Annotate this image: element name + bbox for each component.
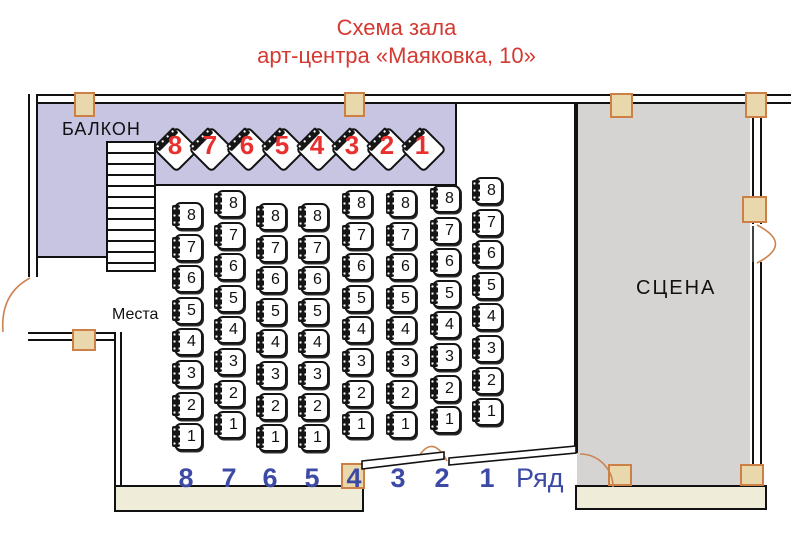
seat-back-icon <box>256 396 264 417</box>
seat-back-icon <box>172 363 180 384</box>
seat-number: 7 <box>264 235 287 263</box>
seat-row2-place5: 5 <box>430 280 461 308</box>
seat-back-icon <box>256 269 264 290</box>
seat-number: 8 <box>222 190 245 218</box>
seat-back-icon <box>172 268 180 289</box>
seat-row7-place1: 1 <box>214 411 245 439</box>
page-title: Схема зала арт-центра «Маяковка, 10» <box>0 14 793 70</box>
seat-back-icon <box>214 351 222 372</box>
seat-number: 8 <box>306 203 329 231</box>
seat-number: 2 <box>438 375 461 403</box>
seat-back-icon <box>256 238 264 259</box>
seat-number: 1 <box>306 424 329 452</box>
seat-row1-place3: 3 <box>472 335 503 363</box>
right-door-arc <box>757 225 776 263</box>
title-line-2: арт-центра «Маяковка, 10» <box>0 42 793 70</box>
seat-row8-place4: 4 <box>172 328 203 356</box>
seat-row8-place8: 8 <box>172 202 203 230</box>
seat-row8-place3: 3 <box>172 360 203 388</box>
seat-back-icon <box>430 283 438 304</box>
seat-back-icon <box>214 256 222 277</box>
seat-row6-place1: 1 <box>256 424 287 452</box>
seat-number: 2 <box>480 367 503 395</box>
seat-row1-place8: 8 <box>472 177 503 205</box>
seat-row2-place7: 7 <box>430 217 461 245</box>
seat-back-icon <box>256 301 264 322</box>
seat-row6-place5: 5 <box>256 298 287 326</box>
seat-back-icon <box>172 300 180 321</box>
seat-row1-place7: 7 <box>472 209 503 237</box>
wall-stud <box>608 464 632 486</box>
seat-number: 6 <box>222 253 245 281</box>
balcony-seat-1: 1 <box>401 125 443 171</box>
seat-number: 4 <box>264 329 287 357</box>
seat-number: 4 <box>306 329 329 357</box>
seat-row4-place2: 2 <box>342 380 373 408</box>
seat-number: 1 <box>180 423 203 451</box>
seat-number: 8 <box>394 190 417 218</box>
wall-stud <box>344 92 365 117</box>
seat-number: 6 <box>394 253 417 281</box>
seat-back-icon <box>430 220 438 241</box>
wall-bottom-hall <box>114 485 364 512</box>
hall-scheme: Схема зала арт-центра «Маяковка, 10» БАЛ… <box>0 0 793 544</box>
seat-back-icon <box>172 205 180 226</box>
seat-number: 1 <box>222 411 245 439</box>
seat-number: 6 <box>264 266 287 294</box>
seat-back-icon <box>472 275 480 296</box>
seat-row7-place5: 5 <box>214 285 245 313</box>
seat-back-icon <box>386 414 394 435</box>
seat-number: 7 <box>480 209 503 237</box>
row-number-4: 4 <box>346 463 361 494</box>
seat-back-icon <box>298 301 306 322</box>
seat-back-icon <box>430 188 438 209</box>
wall-stud <box>610 93 633 118</box>
seat-row7-place7: 7 <box>214 222 245 250</box>
seat-row6-place3: 3 <box>256 361 287 389</box>
seat-row5-place6: 6 <box>298 266 329 294</box>
seat-number: 2 <box>264 393 287 421</box>
seat-row3-place3: 3 <box>386 348 417 376</box>
seat-number: 2 <box>394 380 417 408</box>
seat-back-icon <box>386 383 394 404</box>
seat-row7-place8: 8 <box>214 190 245 218</box>
seat-number: 7 <box>222 222 245 250</box>
seats-label: Места <box>112 306 158 324</box>
row-number-2: 2 <box>434 463 449 494</box>
seat-row8-place2: 2 <box>172 392 203 420</box>
stage-left-wall <box>574 104 578 453</box>
seat-row2-place4: 4 <box>430 311 461 339</box>
seat-number: 3 <box>180 360 203 388</box>
seat-back-icon <box>472 370 480 391</box>
seat-row7-place2: 2 <box>214 380 245 408</box>
seat-back-icon <box>342 193 350 214</box>
seat-number: 4 <box>222 316 245 344</box>
seat-number: 6 <box>306 266 329 294</box>
seat-number: 4 <box>438 311 461 339</box>
title-line-1: Схема зала <box>0 14 793 42</box>
seat-number: 7 <box>438 217 461 245</box>
seat-back-icon <box>214 319 222 340</box>
seat-row3-place5: 5 <box>386 285 417 313</box>
seat-row2-place3: 3 <box>430 343 461 371</box>
seat-back-icon <box>298 206 306 227</box>
seat-number: 4 <box>480 303 503 331</box>
row-number-3: 3 <box>390 463 405 494</box>
seat-number: 5 <box>306 298 329 326</box>
row-number-7: 7 <box>221 463 236 494</box>
seat-back-icon <box>256 332 264 353</box>
seat-number: 3 <box>394 348 417 376</box>
seat-back-icon <box>386 351 394 372</box>
seat-back-icon <box>386 193 394 214</box>
seat-row6-place4: 4 <box>256 329 287 357</box>
seat-back-icon <box>430 251 438 272</box>
seat-number: 7 <box>180 234 203 262</box>
wall-bottom-stage <box>575 485 767 510</box>
seat-number: 5 <box>222 285 245 313</box>
wall-right-lower <box>752 262 762 489</box>
seat-row3-place1: 1 <box>386 411 417 439</box>
seat-row4-place8: 8 <box>342 190 373 218</box>
seat-number: 1 <box>350 411 373 439</box>
seat-row5-place2: 2 <box>298 393 329 421</box>
row-number-8: 8 <box>178 463 193 494</box>
seat-number: 6 <box>480 240 503 268</box>
seat-back-icon <box>342 288 350 309</box>
seat-back-icon <box>386 225 394 246</box>
row-number-1: 1 <box>479 463 494 494</box>
seat-number: 5 <box>264 298 287 326</box>
seat-number: 6 <box>350 253 373 281</box>
balcony-label: БАЛКОН <box>62 119 141 140</box>
seat-number: 1 <box>264 424 287 452</box>
seat-back-icon <box>256 206 264 227</box>
seat-number: 3 <box>480 335 503 363</box>
seat-number: 6 <box>180 265 203 293</box>
seat-number: 5 <box>350 285 373 313</box>
seat-row5-place4: 4 <box>298 329 329 357</box>
row-word-label: Ряд <box>516 463 564 494</box>
seat-number: 3 <box>306 361 329 389</box>
seat-number: 1 <box>438 406 461 434</box>
double-door-arc <box>415 446 447 463</box>
wall-stud <box>742 196 767 223</box>
seat-back-icon <box>342 256 350 277</box>
seat-row2-place6: 6 <box>430 248 461 276</box>
seat-number: 5 <box>480 272 503 300</box>
seat-number: 2 <box>180 392 203 420</box>
seat-number: 2 <box>350 380 373 408</box>
seat-row3-place8: 8 <box>386 190 417 218</box>
seat-row8-place1: 1 <box>172 423 203 451</box>
seat-row3-place6: 6 <box>386 253 417 281</box>
seat-number: 3 <box>438 343 461 371</box>
seat-number: 4 <box>350 316 373 344</box>
wall-stud <box>72 329 96 351</box>
seat-back-icon <box>472 212 480 233</box>
seat-number: 7 <box>350 222 373 250</box>
seat-back-icon <box>172 426 180 447</box>
wall-left-lower <box>114 332 122 487</box>
seat-number: 8 <box>480 177 503 205</box>
seat-row6-place7: 7 <box>256 235 287 263</box>
row-number-6: 6 <box>262 463 277 494</box>
seat-back-icon <box>472 306 480 327</box>
seat-row3-place2: 2 <box>386 380 417 408</box>
seat-row5-place7: 7 <box>298 235 329 263</box>
seat-row7-place3: 3 <box>214 348 245 376</box>
seat-back-icon <box>472 401 480 422</box>
seat-number: 3 <box>264 361 287 389</box>
seat-back-icon <box>342 319 350 340</box>
seat-back-icon <box>386 319 394 340</box>
seat-back-icon <box>172 395 180 416</box>
seat-back-icon <box>214 288 222 309</box>
seat-row3-place4: 4 <box>386 316 417 344</box>
seat-back-icon <box>342 351 350 372</box>
seat-number: 5 <box>438 280 461 308</box>
wall-left-upper <box>28 94 38 277</box>
row-number-5: 5 <box>304 463 319 494</box>
seat-number: 1 <box>401 130 443 161</box>
seat-number: 3 <box>222 348 245 376</box>
seat-back-icon <box>430 314 438 335</box>
seat-row3-place7: 7 <box>386 222 417 250</box>
seat-back-icon <box>298 238 306 259</box>
seat-back-icon <box>430 409 438 430</box>
seat-number: 7 <box>306 235 329 263</box>
seat-row5-place8: 8 <box>298 203 329 231</box>
seat-row7-place6: 6 <box>214 253 245 281</box>
seat-row7-place4: 4 <box>214 316 245 344</box>
seat-number: 8 <box>180 202 203 230</box>
seat-number: 8 <box>350 190 373 218</box>
seat-back-icon <box>430 378 438 399</box>
seat-back-icon <box>342 383 350 404</box>
seat-back-icon <box>214 225 222 246</box>
seat-back-icon <box>214 414 222 435</box>
seat-row8-place7: 7 <box>172 234 203 262</box>
seat-row8-place5: 5 <box>172 297 203 325</box>
seat-back-icon <box>342 414 350 435</box>
seat-back-icon <box>472 243 480 264</box>
seat-back-icon <box>298 396 306 417</box>
stairs <box>106 141 156 272</box>
balcony-seat-7: 7 <box>189 125 231 171</box>
seat-row1-place2: 2 <box>472 367 503 395</box>
wall-stud <box>745 92 767 118</box>
seat-row4-place3: 3 <box>342 348 373 376</box>
seat-number: 1 <box>480 398 503 426</box>
seat-row2-place8: 8 <box>430 185 461 213</box>
seat-number: 6 <box>438 248 461 276</box>
seat-back-icon <box>298 427 306 448</box>
seat-back-icon <box>256 364 264 385</box>
seat-number: 5 <box>180 297 203 325</box>
seat-back-icon <box>386 288 394 309</box>
seat-row2-place2: 2 <box>430 375 461 403</box>
seat-back-icon <box>386 256 394 277</box>
left-door-arc <box>3 278 30 332</box>
seat-row5-place5: 5 <box>298 298 329 326</box>
seat-row6-place8: 8 <box>256 203 287 231</box>
seat-row5-place1: 1 <box>298 424 329 452</box>
seat-back-icon <box>298 332 306 353</box>
seat-row5-place3: 3 <box>298 361 329 389</box>
stage-label: СЦЕНА <box>636 277 716 300</box>
seat-back-icon <box>472 180 480 201</box>
seat-row4-place7: 7 <box>342 222 373 250</box>
seat-number: 8 <box>438 185 461 213</box>
seat-back-icon <box>172 237 180 258</box>
seat-back-icon <box>256 427 264 448</box>
seat-number: 7 <box>189 130 231 161</box>
wall-stud <box>74 92 95 117</box>
seat-row6-place6: 6 <box>256 266 287 294</box>
seat-back-icon <box>472 338 480 359</box>
seat-number: 4 <box>394 316 417 344</box>
seat-row1-place1: 1 <box>472 398 503 426</box>
seat-number: 7 <box>394 222 417 250</box>
seat-row1-place6: 6 <box>472 240 503 268</box>
seat-back-icon <box>342 225 350 246</box>
wall-top <box>28 94 791 104</box>
seat-row4-place5: 5 <box>342 285 373 313</box>
seat-number: 1 <box>394 411 417 439</box>
seat-number: 3 <box>350 348 373 376</box>
seat-row4-place1: 1 <box>342 411 373 439</box>
seat-number: 5 <box>394 285 417 313</box>
seat-row1-place5: 5 <box>472 272 503 300</box>
seat-number: 4 <box>180 328 203 356</box>
seat-row8-place6: 6 <box>172 265 203 293</box>
seat-back-icon <box>214 193 222 214</box>
seat-number: 2 <box>306 393 329 421</box>
seat-back-icon <box>214 383 222 404</box>
seat-row4-place4: 4 <box>342 316 373 344</box>
seat-back-icon <box>430 346 438 367</box>
seat-row4-place6: 6 <box>342 253 373 281</box>
seat-back-icon <box>172 331 180 352</box>
seat-number: 2 <box>222 380 245 408</box>
seat-back-icon <box>298 269 306 290</box>
seat-back-icon <box>298 364 306 385</box>
wall-stud <box>740 464 764 486</box>
seat-row6-place2: 2 <box>256 393 287 421</box>
seat-number: 8 <box>264 203 287 231</box>
seat-row1-place4: 4 <box>472 303 503 331</box>
seat-row2-place1: 1 <box>430 406 461 434</box>
